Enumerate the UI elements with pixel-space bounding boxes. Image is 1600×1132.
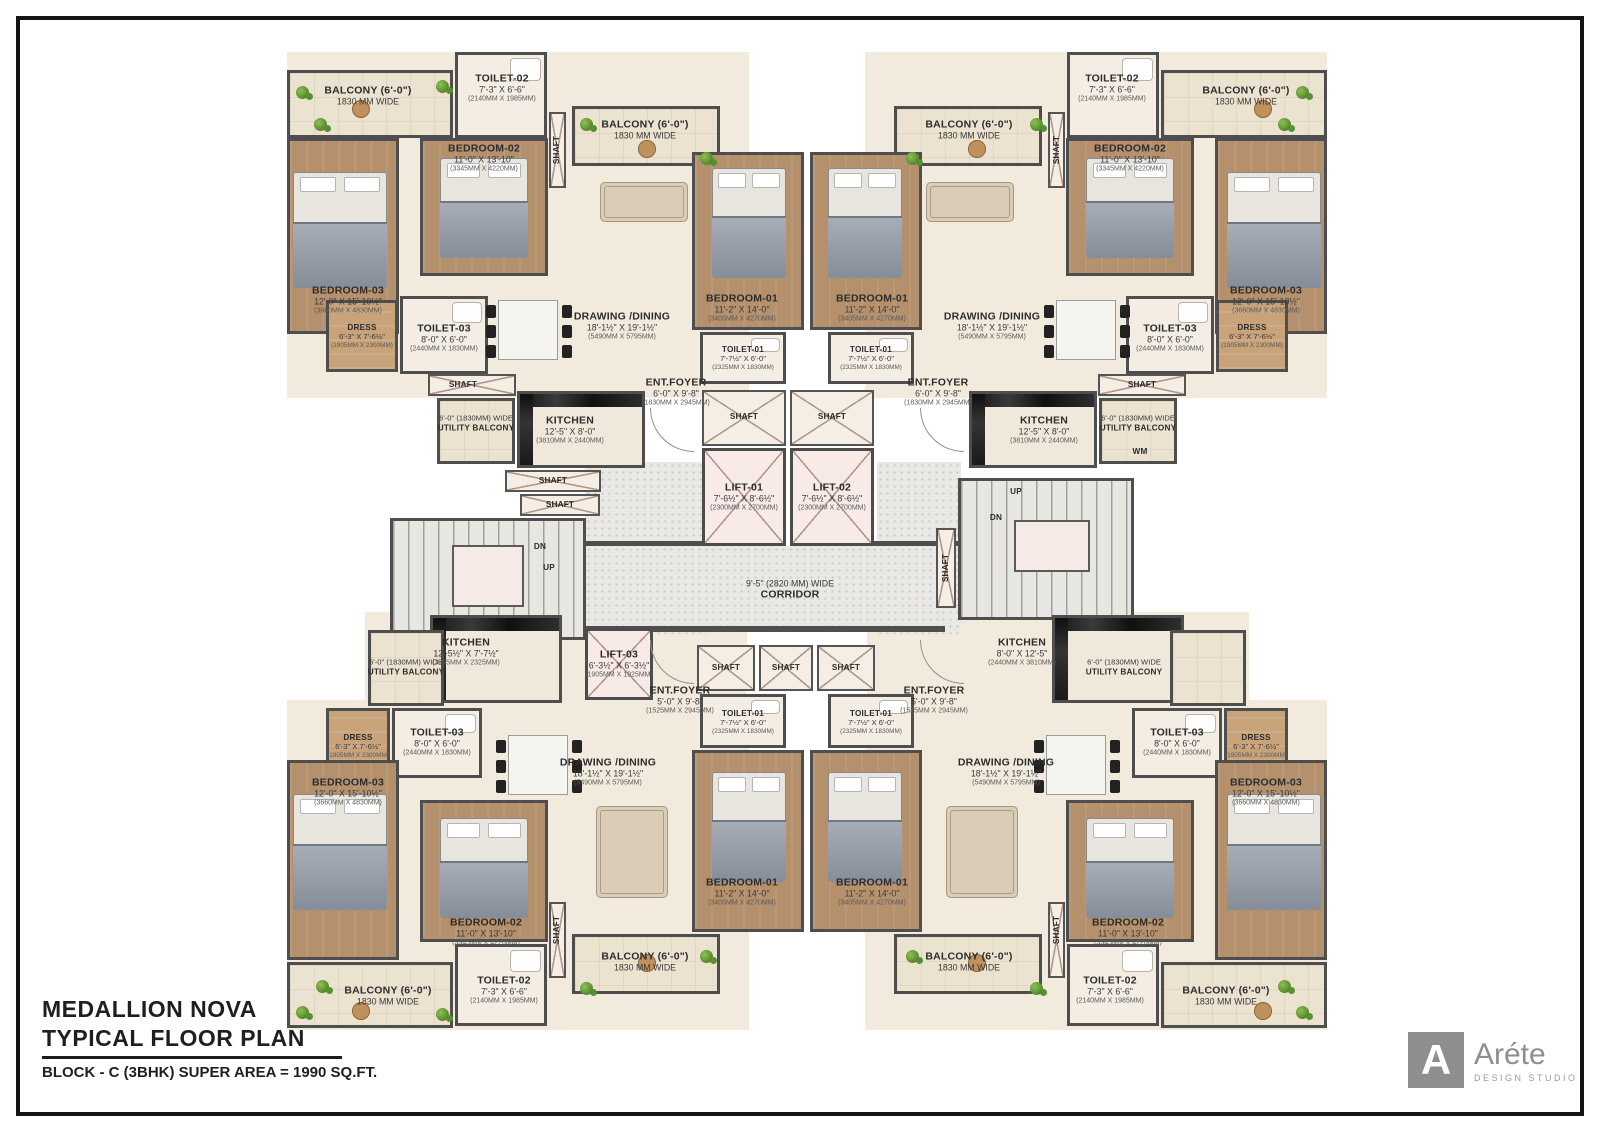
bedroom-02-label-tl-mm: (3345MM X 4220MM) (418, 165, 550, 173)
shaft-label-br-v-name: SHAFT (1052, 864, 1062, 996)
balcony-label-br-name: BALCONY (6'-0") (1160, 985, 1292, 997)
bed (828, 772, 902, 882)
toilet-02-label-tl-mm: (2140MM X 1985MM) (436, 95, 568, 103)
toilet-03-label-tl-mm: (2440MM X 1830MM) (378, 345, 510, 353)
dress-label-br: DRESS6'-3" X 7'-6½"(1905MM X 2300MM) (1221, 733, 1291, 759)
bed (1227, 794, 1321, 910)
toilet-03-label-tl-name: TOILET-03 (378, 323, 510, 335)
up-label-right-name: UP (950, 487, 1082, 497)
drawing-dining-label-bl: DRAWING /DINING18'-1½" X 19'-1½"(5490MM … (542, 757, 674, 788)
bedroom-01-label-br-name: BEDROOM-01 (806, 877, 938, 889)
chair (572, 740, 582, 753)
bedroom-01-label-bl-dims: 11'-2" X 14'-0" (676, 889, 808, 899)
balcony-label-tl-dims: 1830 MM WIDE (302, 97, 434, 107)
drawing-dining-label-tr: DRAWING /DINING18'-1½" X 19'-1½"(5490MM … (926, 311, 1058, 342)
bedroom-03-label-bl-name: BEDROOM-03 (282, 777, 414, 789)
shaft-label-stack1-name: SHAFT (487, 476, 619, 486)
bed-part (834, 173, 862, 188)
kitchen-label-br: KITCHEN8'-0" X 12'-5"(2440MM X 3810MM) (956, 637, 1088, 668)
ent-foyer-label-tl-mm: (1830MM X 2945MM) (634, 399, 718, 407)
balcony-label-bc-left-dims: 1830 MM WIDE (579, 963, 711, 973)
shaft-label-tr-v: SHAFT (1052, 84, 1062, 216)
bed-part (300, 177, 335, 192)
toilet-03-label-tr-dims: 8'-0" X 6'-0" (1104, 335, 1236, 345)
ent-foyer-label-tr-dims: 6'-0" X 9'-8" (896, 389, 980, 399)
bed-part (1134, 823, 1167, 838)
arete-logo: A Aréte DESIGN STUDIO (1408, 1032, 1578, 1088)
toilet-02-label-br-dims: 7'-3" X 6'-6" (1044, 987, 1176, 997)
project-name: MEDALLION NOVA (42, 996, 377, 1023)
bed-part (828, 216, 902, 278)
utility-label-bl-pre: 6'-0" (1830MM) WIDE (367, 659, 445, 668)
bedroom-03-label-br-name: BEDROOM-03 (1200, 777, 1332, 789)
balcony-label-bc-left: BALCONY (6'-0")1830 MM WIDE (579, 951, 711, 974)
bed (712, 168, 786, 278)
wm-label-tr-name: WM (1074, 447, 1206, 457)
shaft-label-bl-v-name: SHAFT (552, 864, 562, 996)
ent-foyer-label-tl: ENT.FOYER6'-0" X 9'-8"(1830MM X 2945MM) (634, 377, 718, 408)
title-underline (42, 1056, 342, 1059)
bedroom-01-label-bl: BEDROOM-0111'-2" X 14'-0"(3405MM X 4270M… (676, 877, 808, 908)
drawing-dining-label-tr-dims: 18'-1½" X 19'-1½" (926, 323, 1058, 333)
toilet-01-label-br-dims: 7'-7½" X 6'-0" (805, 719, 937, 728)
lift-02-label-name: LIFT-02 (766, 482, 898, 494)
bed-part (1227, 222, 1321, 288)
toilet-02-label-tr-name: TOILET-02 (1046, 73, 1178, 85)
plan-title: TYPICAL FLOOR PLAN (42, 1025, 377, 1052)
toilet-03-label-tr: TOILET-038'-0" X 6'-0"(2440MM X 1830MM) (1104, 323, 1236, 354)
bed-part (834, 777, 862, 792)
bedroom-03-label-br: BEDROOM-0312'-0" X 15'-10½"(3660MM X 483… (1200, 777, 1332, 808)
bed (1086, 818, 1174, 918)
floor-plan: BALCONY (6'-0")1830 MM WIDETOILET-027'-3… (0, 0, 1600, 1132)
bed-part (1227, 844, 1321, 910)
drawing-dining-label-br: DRAWING /DINING18'-1½" X 19'-1½"(5490MM … (940, 757, 1072, 788)
corridor-label: 9'-5" (2820 MM) WIDECORRIDOR (724, 579, 856, 602)
kitchen-label-br-name: KITCHEN (956, 637, 1088, 649)
balcony-label-br: BALCONY (6'-0")1830 MM WIDE (1160, 985, 1292, 1008)
up-label-left: UP (483, 563, 615, 573)
ent-foyer-label-br-dims: 5'-0" X 9'-8" (892, 697, 976, 707)
kitchen-label-br-mm: (2440MM X 3810MM) (956, 659, 1088, 667)
plant-icon (700, 152, 713, 165)
plant-icon (1296, 1006, 1309, 1019)
kitchen-label-tl-name: KITCHEN (504, 415, 636, 427)
toilet-03-label-tl-dims: 8'-0" X 6'-0" (378, 335, 510, 345)
shaft-label-tr-v-name: SHAFT (1052, 84, 1062, 216)
kitchen-label-tl-dims: 12'-5" X 8'-0" (504, 427, 636, 437)
dn-label-right-name: DN (930, 513, 1062, 523)
sofa (600, 182, 688, 222)
bedroom-02-label-tr-dims: 11'-0" X 13'-10" (1064, 155, 1196, 165)
plant-icon (906, 152, 919, 165)
drawing-dining-label-br-dims: 18'-1½" X 19'-1½" (940, 769, 1072, 779)
bedroom-03-label-tl-dims: 12'-0" X 15'-10½" (282, 297, 414, 307)
bed-part (1086, 201, 1174, 258)
toilet-02-label-bl-mm: (2140MM X 1985MM) (438, 997, 570, 1005)
bed-part (488, 823, 521, 838)
shaft-label-tr-h-name: SHAFT (1076, 380, 1208, 390)
balcony-label-bc-right: BALCONY (6'-0")1830 MM WIDE (903, 951, 1035, 974)
toilet-01-label-br: TOILET-017'-7½" X 6'-0"(2325MM X 1830MM) (805, 709, 937, 735)
bed-part (752, 777, 780, 792)
bedroom-03-label-tr: BEDROOM-0312'-0" X 15'-10½"(3660MM X 483… (1200, 285, 1332, 316)
kitchen-label-tl-mm: (3810MM X 2440MM) (504, 437, 636, 445)
bed-part (718, 777, 746, 792)
bedroom-02-label-br: BEDROOM-0211'-0" X 13'-10"(3345MM X 4220… (1062, 917, 1194, 948)
toilet-03-label-tl: TOILET-038'-0" X 6'-0"(2440MM X 1830MM) (378, 323, 510, 354)
shaft-label-b3-name: SHAFT (780, 663, 912, 673)
balcony-table (968, 140, 986, 158)
ent-foyer-label-tl-dims: 6'-0" X 9'-8" (634, 389, 718, 399)
shaft-label-bl-v: SHAFT (552, 864, 562, 996)
logo-tagline: DESIGN STUDIO (1474, 1073, 1578, 1083)
ent-foyer-label-br-name: ENT.FOYER (892, 685, 976, 697)
bedroom-02-label-tl: BEDROOM-0211'-0" X 13'-10"(3345MM X 4220… (418, 143, 550, 174)
bedroom-02-label-tr: BEDROOM-0211'-0" X 13'-10"(3345MM X 4220… (1064, 143, 1196, 174)
bedroom-03-label-br-dims: 12'-0" X 15'-10½" (1200, 789, 1332, 799)
dress-label-bl: DRESS6'-3" X 7'-6½"(1905MM X 2300MM) (323, 733, 393, 759)
kitchen-label-tr-name: KITCHEN (978, 415, 1110, 427)
bed-part (440, 201, 528, 258)
bedroom-01-label-tr: BEDROOM-0111'-2" X 14'-0"(3405MM X 4270M… (806, 293, 938, 324)
bed-part (1086, 861, 1174, 918)
balcony-label-tr-dims: 1830 MM WIDE (1180, 97, 1312, 107)
shaft-label-stack2: SHAFT (494, 500, 626, 510)
dress-label-bl-dims: 6'-3" X 7'-6½" (323, 743, 393, 752)
bedroom-01-label-tl-dims: 11'-2" X 14'-0" (676, 305, 808, 315)
bedroom-02-label-tr-name: BEDROOM-02 (1064, 143, 1196, 155)
toilet-02-label-bl-name: TOILET-02 (438, 975, 570, 987)
dress-label-br-mm: (1905MM X 2300MM) (1221, 752, 1291, 760)
kitchen-label-tr-mm: (3810MM X 2440MM) (978, 437, 1110, 445)
bed-part (712, 216, 786, 278)
chair (496, 780, 506, 793)
shaft-label-tl-h: SHAFT (397, 380, 529, 390)
dn-label-right: DN (930, 513, 1062, 523)
chair (1110, 760, 1120, 773)
toilet-01-label-tl-mm: (2325MM X 1830MM) (677, 364, 809, 372)
bed (712, 772, 786, 882)
ent-foyer-label-bl-name: ENT.FOYER (638, 685, 722, 697)
balcony-label-tc-left-name: BALCONY (6'-0") (579, 119, 711, 131)
toilet-01-label-tl: TOILET-017'-7½" X 6'-0"(2325MM X 1830MM) (677, 345, 809, 371)
ent-foyer-label-tr-mm: (1830MM X 2945MM) (896, 399, 980, 407)
plant-icon (1278, 118, 1291, 131)
balcony-label-tl-name: BALCONY (6'-0") (302, 85, 434, 97)
kitchen-label-tr: KITCHEN12'-5" X 8'-0"(3810MM X 2440MM) (978, 415, 1110, 446)
bedroom-02-label-bl-mm: (3345MM X 4220MM) (420, 939, 552, 947)
bedroom-01-label-tl-name: BEDROOM-01 (676, 293, 808, 305)
bedroom-01-label-bl-mm: (3405MM X 4270MM) (676, 899, 808, 907)
bedroom-03-label-tl-name: BEDROOM-03 (282, 285, 414, 297)
bedroom-03-label-tr-name: BEDROOM-03 (1200, 285, 1332, 297)
bedroom-03-label-bl: BEDROOM-0312'-0" X 15'-10½"(3660MM X 483… (282, 777, 414, 808)
bedroom-02-label-tl-name: BEDROOM-02 (418, 143, 550, 155)
bed-part (1093, 823, 1126, 838)
corridor-label-pre: 9'-5" (2820 MM) WIDE (724, 579, 856, 589)
drawing-dining-label-bl-mm: (5490MM X 5795MM) (542, 779, 674, 787)
logo-monogram-icon: A (1408, 1032, 1464, 1088)
bedroom-02-label-bl-name: BEDROOM-02 (420, 917, 552, 929)
dn-label-left-name: DN (474, 542, 606, 552)
shaft-label-tl-h-name: SHAFT (397, 380, 529, 390)
sofa (596, 806, 668, 898)
drawing-dining-label-br-mm: (5490MM X 5795MM) (940, 779, 1072, 787)
shaft-label-tl-v: SHAFT (552, 84, 562, 216)
toilet-01-label-bl-mm: (2325MM X 1830MM) (677, 728, 809, 736)
toilet-02-label-br-name: TOILET-02 (1044, 975, 1176, 987)
bedroom-01-label-tr-mm: (3405MM X 4270MM) (806, 315, 938, 323)
balcony-label-bc-right-dims: 1830 MM WIDE (903, 963, 1035, 973)
toilet-01-label-bl-dims: 7'-7½" X 6'-0" (677, 719, 809, 728)
bedroom-02-label-br-dims: 11'-0" X 13'-10" (1062, 929, 1194, 939)
utility-label-br-name: UTILITY BALCONY (1085, 668, 1163, 678)
utility-label-br: 6'-0" (1830MM) WIDEUTILITY BALCONY (1085, 659, 1163, 678)
sofa (946, 806, 1018, 898)
balcony-label-tc-left-dims: 1830 MM WIDE (579, 131, 711, 141)
bed (1227, 172, 1321, 288)
toilet-01-label-tr-dims: 7'-7½" X 6'-0" (805, 355, 937, 364)
drawing-dining-label-tr-name: DRAWING /DINING (926, 311, 1058, 323)
toilet-02-label-bl: TOILET-027'-3" X 6'-6"(2140MM X 1985MM) (438, 975, 570, 1006)
balcony-label-tc-right: BALCONY (6'-0")1830 MM WIDE (903, 119, 1035, 142)
toilet-01-label-bl: TOILET-017'-7½" X 6'-0"(2325MM X 1830MM) (677, 709, 809, 735)
toilet-02-label-tl-name: TOILET-02 (436, 73, 568, 85)
utility-br (1170, 630, 1246, 706)
kitchen-label-br-dims: 8'-0" X 12'-5" (956, 649, 1088, 659)
toilet-02-label-tl-dims: 7'-3" X 6'-6" (436, 85, 568, 95)
logo-name: Aréte (1474, 1038, 1578, 1072)
dn-label-left: DN (474, 542, 606, 552)
bedroom-01-label-tl-mm: (3405MM X 4270MM) (676, 315, 808, 323)
block-info: BLOCK - C (3BHK) SUPER AREA = 1990 SQ.FT… (42, 1064, 377, 1081)
utility-label-tr: 6'-0" (1830MM) WIDEUTILITY BALCONY (1099, 415, 1177, 434)
utility-label-tr-pre: 6'-0" (1830MM) WIDE (1099, 415, 1177, 424)
kitchen-label-tr-dims: 12'-5" X 8'-0" (978, 427, 1110, 437)
drawing-dining-label-tl-name: DRAWING /DINING (556, 311, 688, 323)
drawing-dining-label-bl-name: DRAWING /DINING (542, 757, 674, 769)
stair-landing (452, 545, 524, 607)
balcony-label-tc-right-dims: 1830 MM WIDE (903, 131, 1035, 141)
bedroom-01-label-br-dims: 11'-2" X 14'-0" (806, 889, 938, 899)
lift-02-label-mm: (2300MM X 2700MM) (766, 504, 898, 512)
shaft-label-tr-h: SHAFT (1076, 380, 1208, 390)
sofa (926, 182, 1014, 222)
chair (1044, 345, 1054, 358)
utility-label-tr-name: UTILITY BALCONY (1099, 424, 1177, 434)
bedroom-01-label-tl: BEDROOM-0111'-2" X 14'-0"(3405MM X 4270M… (676, 293, 808, 324)
plant-icon (580, 982, 593, 995)
title-block: MEDALLION NOVA TYPICAL FLOOR PLAN BLOCK … (42, 996, 377, 1081)
bed (440, 818, 528, 918)
wm-label-tr: WM (1074, 447, 1206, 457)
toilet-02-label-tr: TOILET-027'-3" X 6'-6"(2140MM X 1985MM) (1046, 73, 1178, 104)
bedroom-01-label-bl-name: BEDROOM-01 (676, 877, 808, 889)
utility-label-bl: 6'-0" (1830MM) WIDEUTILITY BALCONY (367, 659, 445, 678)
bed-part (447, 823, 480, 838)
bedroom-03-label-tl-mm: (3660MM X 4830MM) (282, 307, 414, 315)
ent-foyer-label-tl-name: ENT.FOYER (634, 377, 718, 389)
bedroom-03-label-tr-mm: (3660MM X 4830MM) (1200, 307, 1332, 315)
bedroom-01-label-br-mm: (3405MM X 4270MM) (806, 899, 938, 907)
chair (1110, 780, 1120, 793)
up-label-right: UP (950, 487, 1082, 497)
balcony-label-tc-left: BALCONY (6'-0")1830 MM WIDE (579, 119, 711, 142)
bed (293, 172, 387, 288)
ent-foyer-label-tr-name: ENT.FOYER (896, 377, 980, 389)
balcony-label-tl: BALCONY (6'-0")1830 MM WIDE (302, 85, 434, 108)
drawing-dining-label-br-name: DRAWING /DINING (940, 757, 1072, 769)
bedroom-02-label-tl-dims: 11'-0" X 13'-10" (418, 155, 550, 165)
bedroom-02-label-tr-mm: (3345MM X 4220MM) (1064, 165, 1196, 173)
drawing-dining-label-tl-mm: (5490MM X 5795MM) (556, 333, 688, 341)
bedroom-01-label-tr-dims: 11'-2" X 14'-0" (806, 305, 938, 315)
toilet-02-label-br: TOILET-027'-3" X 6'-6"(2140MM X 1985MM) (1044, 975, 1176, 1006)
toilet-02-label-br-mm: (2140MM X 1985MM) (1044, 997, 1176, 1005)
bedroom-03-label-br-mm: (3660MM X 4830MM) (1200, 799, 1332, 807)
shaft-label-tl-v-name: SHAFT (552, 84, 562, 216)
bed (293, 794, 387, 910)
bed-part (718, 173, 746, 188)
bedroom-02-label-br-mm: (3345MM X 4220MM) (1062, 939, 1194, 947)
bedroom-01-label-br: BEDROOM-0111'-2" X 14'-0"(3405MM X 4270M… (806, 877, 938, 908)
bed-part (752, 173, 780, 188)
plant-icon (436, 1008, 449, 1021)
toilet-02-label-bl-dims: 7'-3" X 6'-6" (438, 987, 570, 997)
chair (496, 760, 506, 773)
bedroom-02-label-br-name: BEDROOM-02 (1062, 917, 1194, 929)
dress-label-bl-mm: (1905MM X 2300MM) (323, 752, 393, 760)
lift-03-label-name: LIFT-03 (553, 649, 685, 661)
shaft-label-stack2-name: SHAFT (494, 500, 626, 510)
shaft-label-lift2: SHAFT (766, 412, 898, 422)
toilet-01-label-tr-mm: (2325MM X 1830MM) (805, 364, 937, 372)
toilet-01-label-tl-dims: 7'-7½" X 6'-0" (677, 355, 809, 364)
drawing-dining-label-tr-mm: (5490MM X 5795MM) (926, 333, 1058, 341)
bedroom-03-label-tl: BEDROOM-0312'-0" X 15'-10½"(3660MM X 483… (282, 285, 414, 316)
kitchen-label-bl-name: KITCHEN (400, 637, 532, 649)
balcony-table (638, 140, 656, 158)
utility-label-br-pre: 6'-0" (1830MM) WIDE (1085, 659, 1163, 668)
toilet-03-label-tr-name: TOILET-03 (1104, 323, 1236, 335)
logo-text: Aréte DESIGN STUDIO (1474, 1038, 1578, 1083)
kitchen-label-tl: KITCHEN12'-5" X 8'-0"(3810MM X 2440MM) (504, 415, 636, 446)
toilet-02-label-tr-dims: 7'-3" X 6'-6" (1046, 85, 1178, 95)
bed-part (1278, 177, 1313, 192)
drawing-dining-label-bl-dims: 18'-1½" X 19'-1½" (542, 769, 674, 779)
chair (562, 345, 572, 358)
balcony-label-bc-right-name: BALCONY (6'-0") (903, 951, 1035, 963)
chair (1120, 305, 1130, 318)
lift-02-label: LIFT-027'-6½" X 8'-6½"(2300MM X 2700MM) (766, 482, 898, 513)
toilet-02-label-tr-mm: (2140MM X 1985MM) (1046, 95, 1178, 103)
bedroom-02-label-bl-dims: 11'-0" X 13'-10" (420, 929, 552, 939)
balcony-label-br-dims: 1830 MM WIDE (1160, 997, 1292, 1007)
drawing-dining-label-tl-dims: 18'-1½" X 19'-1½" (556, 323, 688, 333)
bed-part (868, 173, 896, 188)
bed-part (1234, 177, 1269, 192)
stair-landing (1014, 520, 1090, 572)
door-swing (920, 408, 964, 452)
bedroom-03-label-bl-mm: (3660MM X 4830MM) (282, 799, 414, 807)
bed (828, 168, 902, 278)
bedroom-03-label-bl-dims: 12'-0" X 15'-10½" (282, 789, 414, 799)
bed-part (440, 861, 528, 918)
bed-part (293, 844, 387, 910)
balcony-label-bc-left-name: BALCONY (6'-0") (579, 951, 711, 963)
shaft-label-lift2-name: SHAFT (766, 412, 898, 422)
bedroom-01-label-tr-name: BEDROOM-01 (806, 293, 938, 305)
bed-part (712, 820, 786, 882)
toilet-02-label-tl: TOILET-027'-3" X 6'-6"(2140MM X 1985MM) (436, 73, 568, 104)
utility-label-bl-name: UTILITY BALCONY (367, 668, 445, 678)
toilet-01-label-tr: TOILET-017'-7½" X 6'-0"(2325MM X 1830MM) (805, 345, 937, 371)
balcony-label-tc-right-name: BALCONY (6'-0") (903, 119, 1035, 131)
balcony-label-tr: BALCONY (6'-0")1830 MM WIDE (1180, 85, 1312, 108)
chair (1034, 740, 1044, 753)
toilet-01-label-br-mm: (2325MM X 1830MM) (805, 728, 937, 736)
dress-label-br-dims: 6'-3" X 7'-6½" (1221, 743, 1291, 752)
toilet-03-label-tr-mm: (2440MM X 1830MM) (1104, 345, 1236, 353)
shaft-label-br-v: SHAFT (1052, 864, 1062, 996)
balcony-label-tr-name: BALCONY (6'-0") (1180, 85, 1312, 97)
bed-part (868, 777, 896, 792)
drawing-dining-label-tl: DRAWING /DINING18'-1½" X 19'-1½"(5490MM … (556, 311, 688, 342)
bed-part (293, 222, 387, 288)
lift-02-label-dims: 7'-6½" X 8'-6½" (766, 494, 898, 504)
ent-foyer-label-tr: ENT.FOYER6'-0" X 9'-8"(1830MM X 2945MM) (896, 377, 980, 408)
shaft-label-stack1: SHAFT (487, 476, 619, 486)
bedroom-03-label-tr-dims: 12'-0" X 15'-10½" (1200, 297, 1332, 307)
ent-foyer-label-bl-dims: 5'-0" X 9'-8" (638, 697, 722, 707)
corridor-label-name: CORRIDOR (724, 589, 856, 601)
up-label-left-name: UP (483, 563, 615, 573)
bed-part (344, 177, 379, 192)
plant-icon (1030, 982, 1043, 995)
chair (486, 305, 496, 318)
bed-part (828, 820, 902, 882)
shaft-label-b3: SHAFT (780, 663, 912, 673)
bedroom-02-label-bl: BEDROOM-0211'-0" X 13'-10"(3345MM X 4220… (420, 917, 552, 948)
plant-icon (314, 118, 327, 131)
